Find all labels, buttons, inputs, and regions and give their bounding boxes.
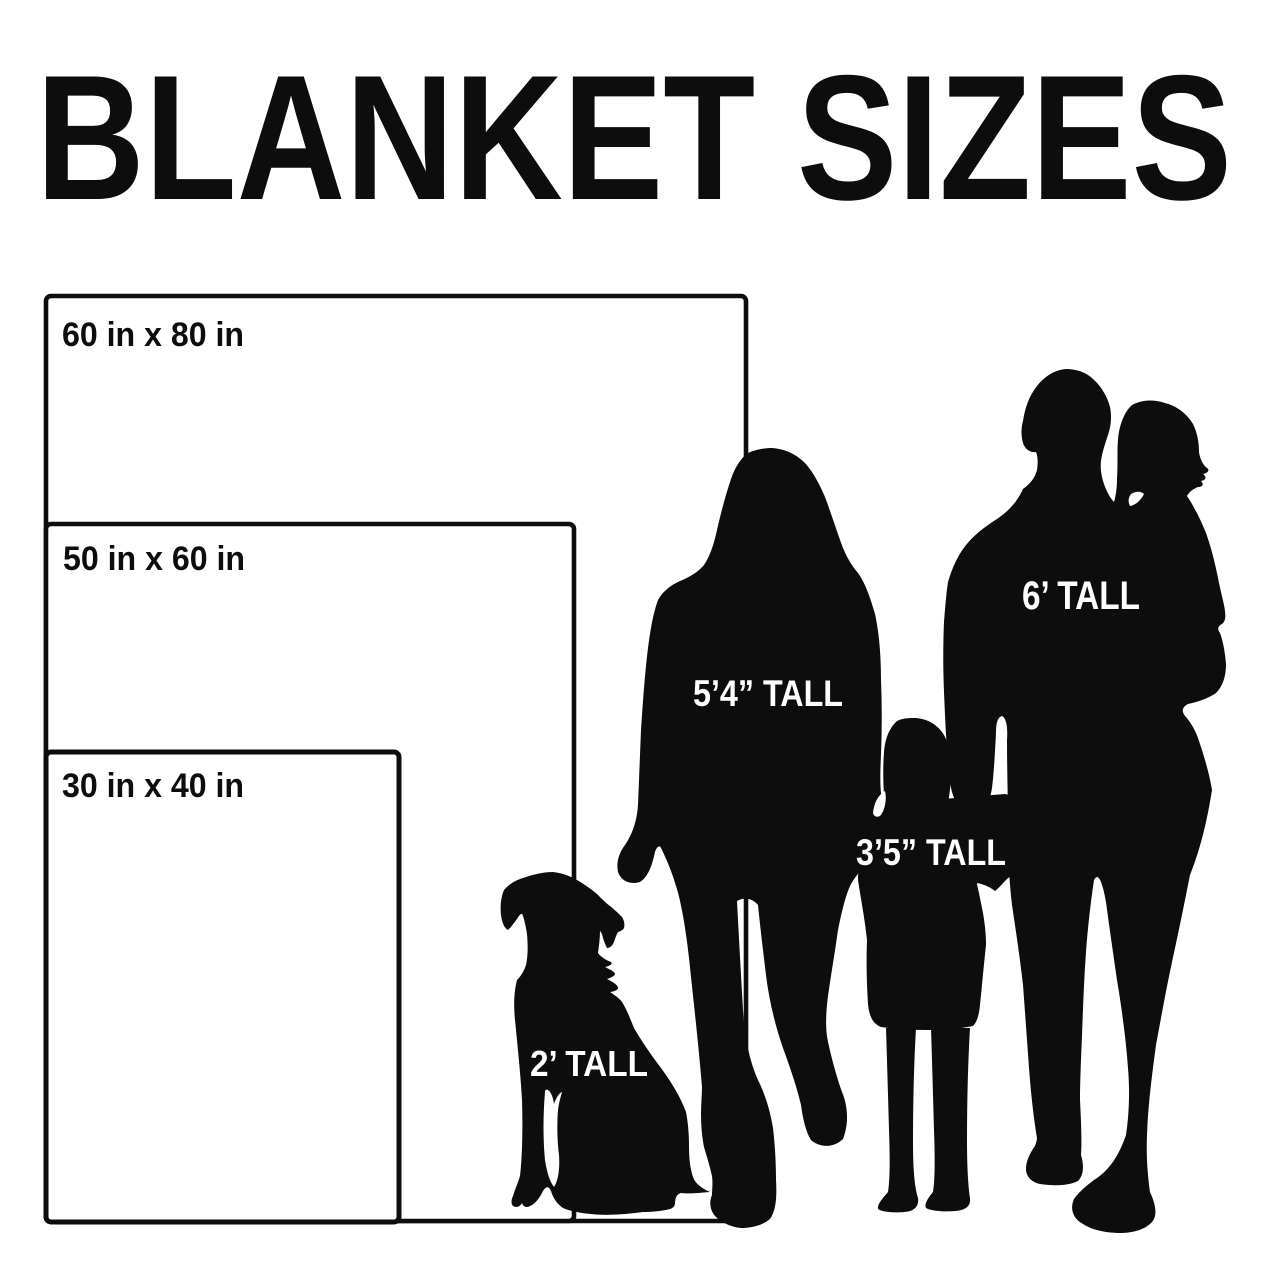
svg-text:6’ TALL: 6’ TALL <box>1022 574 1140 618</box>
svg-text:60 in x 80 in: 60 in x 80 in <box>62 316 244 354</box>
svg-text:3’5” TALL: 3’5” TALL <box>856 832 1006 873</box>
svg-text:BLANKET SIZES: BLANKET SIZES <box>36 38 1232 237</box>
svg-text:2’ TALL: 2’ TALL <box>530 1043 648 1084</box>
svg-text:50 in x 60 in: 50 in x 60 in <box>63 540 245 578</box>
svg-text:30 in x 40 in: 30 in x 40 in <box>62 767 244 805</box>
svg-text:5’4” TALL: 5’4” TALL <box>693 673 843 714</box>
